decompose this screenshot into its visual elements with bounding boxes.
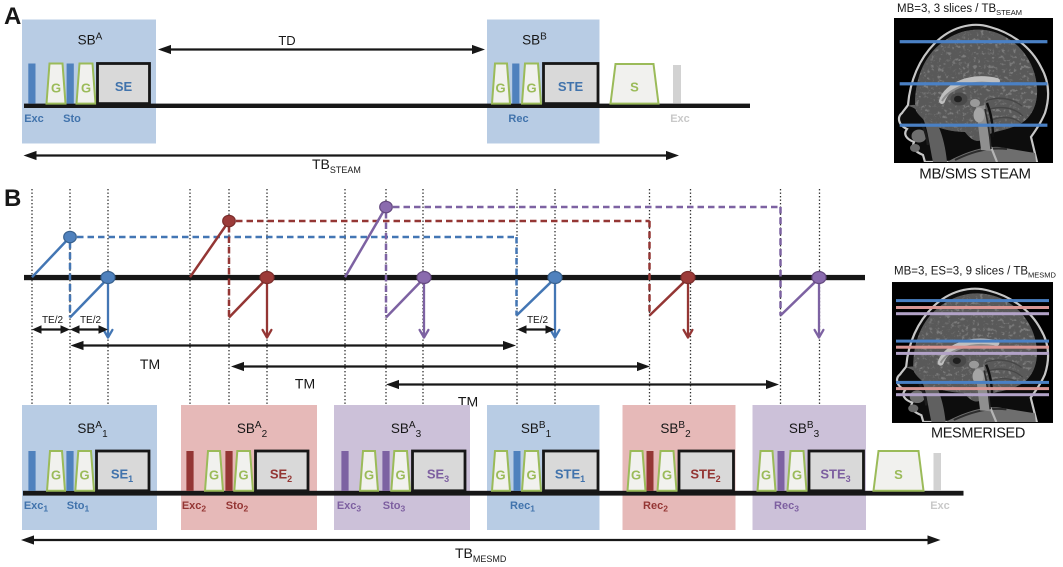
svg-text:TE/2: TE/2 [42,315,64,326]
svg-text:TE/2: TE/2 [527,315,549,326]
svg-text:Exc: Exc [24,113,44,125]
svg-text:G: G [239,468,249,483]
svg-text:G: G [209,468,219,483]
svg-text:G: G [51,80,61,95]
svg-text:G: G [51,468,61,483]
svg-text:G: G [495,468,505,483]
svg-text:A: A [4,3,21,30]
svg-text:G: G [81,80,91,95]
svg-text:STE: STE [558,79,584,94]
svg-text:TM: TM [295,376,315,392]
svg-text:G: G [792,468,802,483]
svg-text:MB/SMS STEAM: MB/SMS STEAM [919,166,1030,183]
svg-text:G: G [526,468,536,483]
svg-text:G: G [80,468,90,483]
svg-text:G: G [761,468,771,483]
svg-text:S: S [630,80,639,95]
svg-text:MESMERISED: MESMERISED [931,426,1025,442]
svg-text:TM: TM [140,356,160,372]
svg-text:Exc: Exc [930,500,950,512]
svg-text:Rec: Rec [508,113,528,125]
svg-text:G: G [495,80,505,95]
svg-text:G: G [364,468,374,483]
svg-text:TE/2: TE/2 [80,315,102,326]
svg-text:B: B [4,185,21,212]
svg-text:G: G [526,80,536,95]
svg-text:TD: TD [278,33,295,48]
svg-text:Exc: Exc [670,113,690,125]
svg-text:Sto: Sto [63,113,81,125]
svg-text:G: G [662,468,672,483]
svg-text:S: S [894,467,903,482]
svg-text:G: G [396,468,406,483]
svg-text:G: G [631,468,641,483]
svg-text:SE: SE [115,79,133,94]
